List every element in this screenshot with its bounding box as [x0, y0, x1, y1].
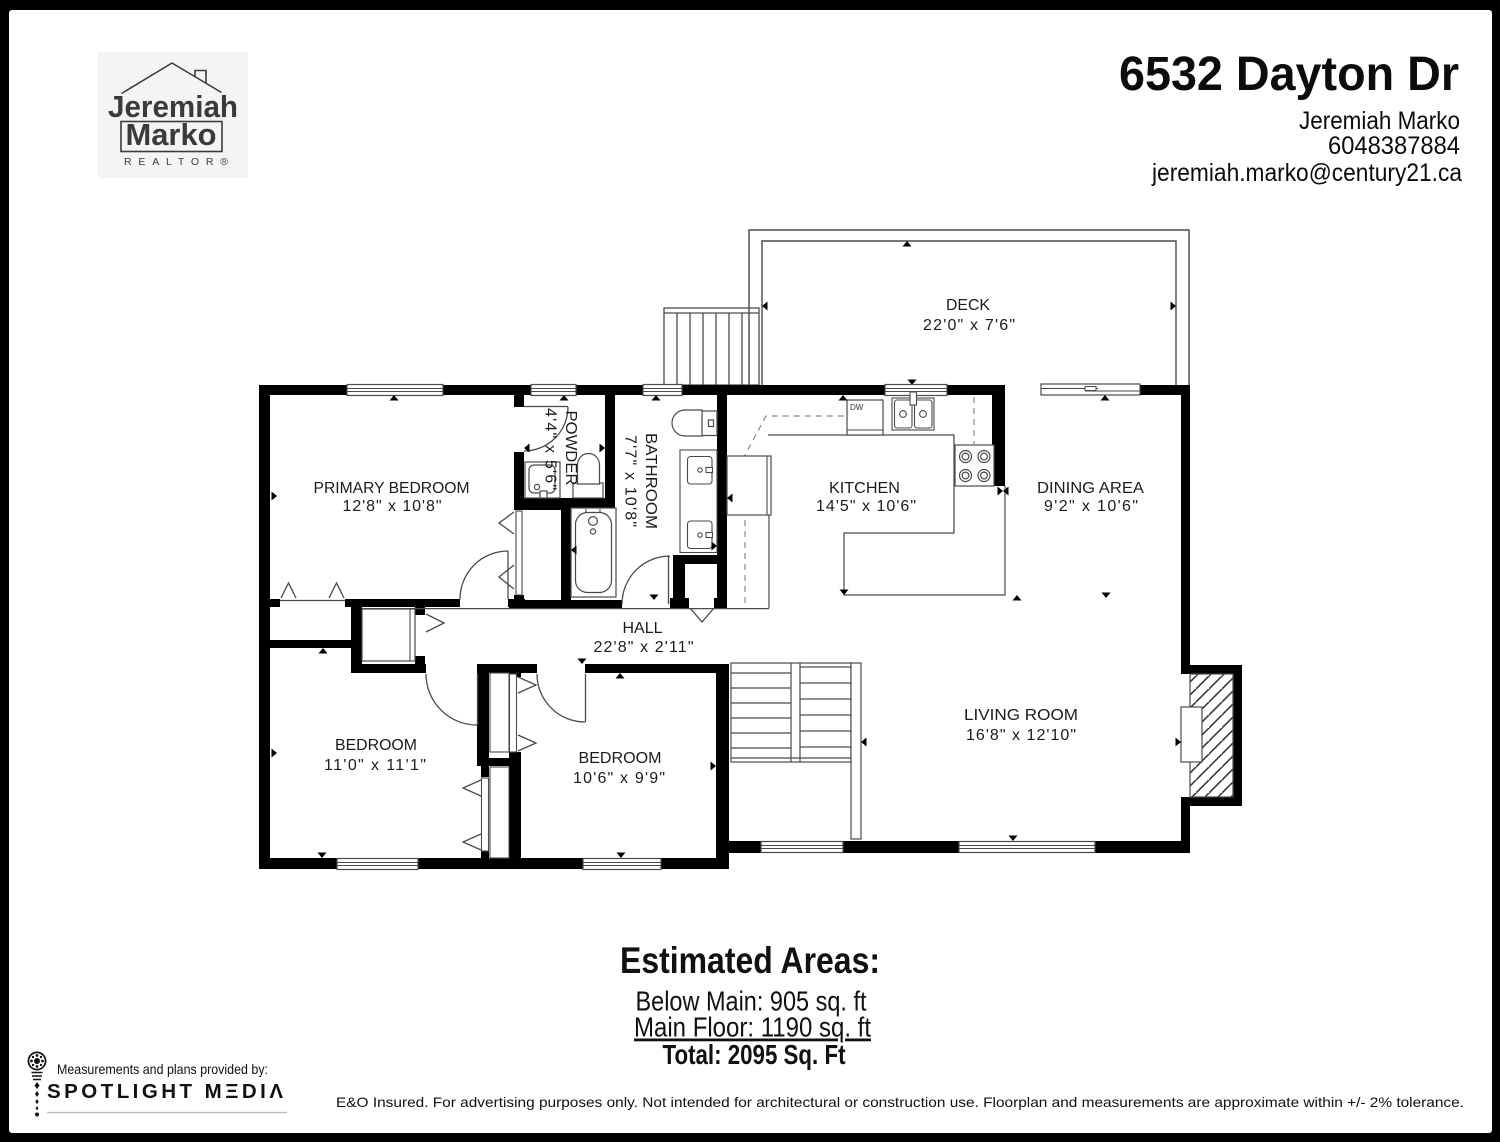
svg-text:BATHROOM: BATHROOM [642, 433, 659, 529]
svg-text:DINING AREA: DINING AREA [1037, 480, 1144, 497]
svg-text:11'0" x 11'1": 11'0" x 11'1" [324, 757, 426, 774]
svg-text:Total: 2095 Sq. Ft: Total: 2095 Sq. Ft [663, 1039, 846, 1070]
svg-text:14'5" x 10'6": 14'5" x 10'6" [816, 498, 916, 515]
svg-text:6532 Dayton Dr: 6532 Dayton Dr [1119, 48, 1459, 101]
svg-text:DW: DW [850, 403, 864, 412]
svg-text:SPOTLIGHT MΞDIΛ: SPOTLIGHT MΞDIΛ [47, 1080, 283, 1103]
svg-text:jeremiah.marko@century21.ca: jeremiah.marko@century21.ca [1151, 159, 1462, 187]
svg-text:Measurements and plans provide: Measurements and plans provided by: [57, 1062, 268, 1077]
svg-text:4'4" x 5'6": 4'4" x 5'6" [542, 408, 559, 490]
svg-text:Jeremiah Marko: Jeremiah Marko [1299, 107, 1460, 135]
svg-text:Estimated Areas:: Estimated Areas: [620, 940, 880, 981]
svg-text:BEDROOM: BEDROOM [335, 737, 417, 754]
svg-text:22'8" x 2'11": 22'8" x 2'11" [594, 639, 694, 656]
svg-text:DECK: DECK [946, 297, 990, 314]
svg-text:LIVING ROOM: LIVING ROOM [964, 707, 1078, 724]
svg-text:7'7" x 10'8": 7'7" x 10'8" [622, 435, 639, 527]
svg-text:BEDROOM: BEDROOM [579, 750, 662, 767]
svg-text:HALL: HALL [623, 620, 663, 637]
svg-text:Main Floor: 1190 sq. ft: Main Floor: 1190 sq. ft [634, 1012, 871, 1043]
svg-text:PRIMARY BEDROOM: PRIMARY BEDROOM [314, 480, 470, 497]
svg-text:E&O Insured. For advertising p: E&O Insured. For advertising purposes on… [336, 1095, 1464, 1110]
svg-text:9'2" x 10'6": 9'2" x 10'6" [1044, 498, 1138, 515]
svg-text:KITCHEN: KITCHEN [829, 480, 900, 497]
svg-text:6048387884: 6048387884 [1328, 132, 1460, 160]
svg-text:12'8" x 10'8": 12'8" x 10'8" [343, 498, 442, 515]
svg-text:POWDER: POWDER [562, 411, 579, 486]
svg-text:16'8" x 12'10": 16'8" x 12'10" [966, 727, 1076, 744]
svg-text:Marko: Marko [126, 117, 217, 152]
